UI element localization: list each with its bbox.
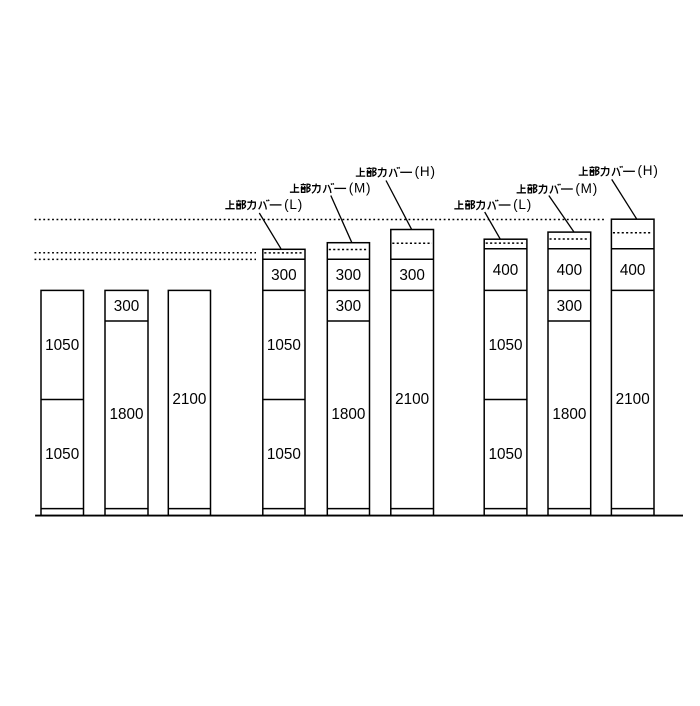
svg-text:(L): (L): [513, 197, 532, 212]
svg-text:300: 300: [336, 298, 362, 315]
svg-text:1050: 1050: [45, 337, 79, 354]
svg-text:1050: 1050: [488, 446, 522, 463]
svg-text:(L): (L): [284, 197, 303, 212]
svg-text:400: 400: [620, 262, 646, 279]
svg-text:1800: 1800: [109, 406, 143, 423]
svg-text:1050: 1050: [45, 446, 79, 463]
svg-text:300: 300: [399, 267, 425, 284]
svg-text:(M): (M): [349, 180, 372, 195]
svg-text:300: 300: [336, 267, 362, 284]
svg-text:1800: 1800: [331, 406, 365, 423]
svg-text:(H): (H): [415, 164, 436, 179]
svg-text:(M): (M): [575, 181, 598, 196]
svg-text:(H): (H): [638, 163, 659, 178]
svg-text:300: 300: [114, 298, 140, 315]
svg-text:400: 400: [493, 262, 519, 279]
svg-text:1800: 1800: [552, 406, 586, 423]
svg-text:2100: 2100: [172, 391, 206, 408]
svg-text:2100: 2100: [616, 391, 650, 408]
svg-text:1050: 1050: [267, 446, 301, 463]
svg-text:2100: 2100: [395, 391, 429, 408]
svg-text:300: 300: [271, 267, 297, 284]
svg-text:1050: 1050: [488, 337, 522, 354]
svg-text:400: 400: [557, 262, 583, 279]
svg-text:300: 300: [557, 298, 583, 315]
svg-text:1050: 1050: [267, 337, 301, 354]
